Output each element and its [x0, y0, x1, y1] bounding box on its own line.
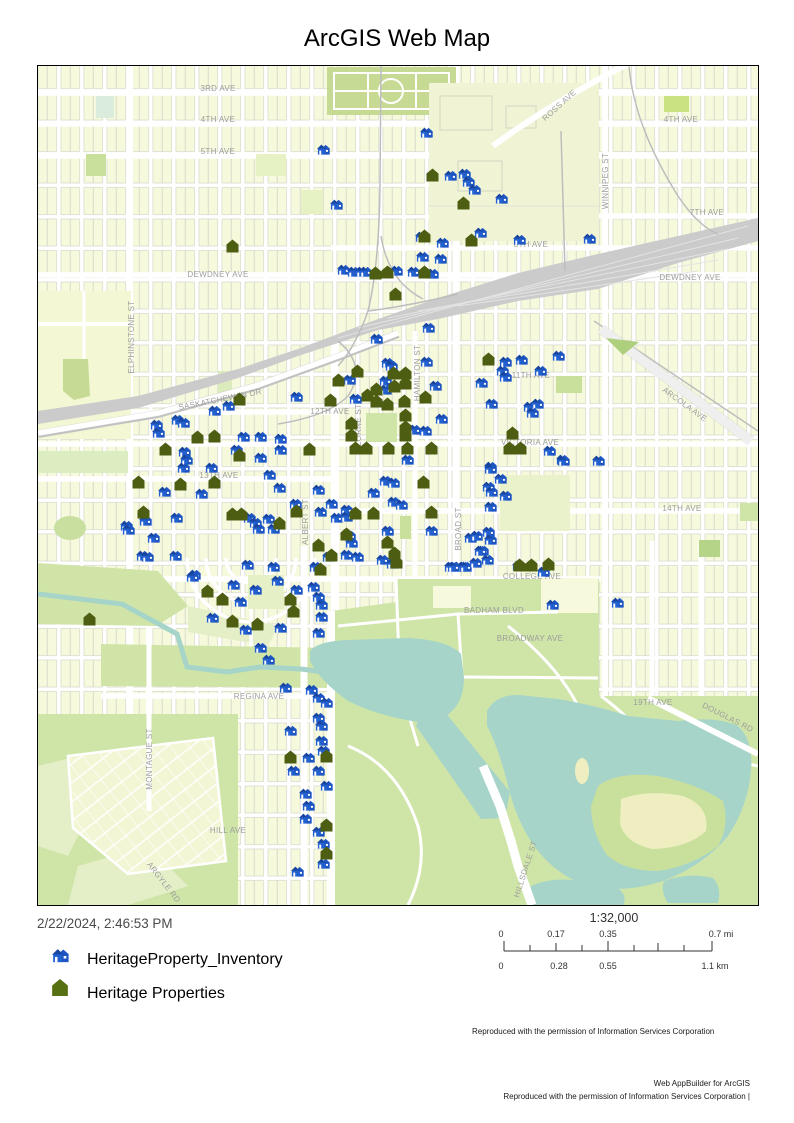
svg-text:ALBERT ST: ALBERT ST	[301, 499, 310, 545]
svg-text:1.1 km: 1.1 km	[701, 961, 728, 971]
svg-text:DEWDNEY AVE: DEWDNEY AVE	[187, 270, 248, 279]
svg-text:7TH AVE: 7TH AVE	[690, 208, 724, 217]
svg-text:0.17: 0.17	[547, 929, 565, 939]
svg-text:WINNIPEG ST: WINNIPEG ST	[601, 153, 610, 209]
svg-text:12TH AVE: 12TH AVE	[310, 407, 349, 416]
svg-text:DEWDNEY AVE: DEWDNEY AVE	[659, 273, 720, 282]
svg-text:0.7 mi: 0.7 mi	[709, 929, 734, 939]
svg-text:13TH AVE: 13TH AVE	[199, 471, 238, 480]
svg-text:0.55: 0.55	[599, 961, 617, 971]
svg-text:5TH AVE: 5TH AVE	[201, 147, 235, 156]
svg-text:ELPHINSTONE ST: ELPHINSTONE ST	[127, 301, 136, 374]
svg-text:BADHAM BLVD: BADHAM BLVD	[464, 606, 524, 615]
svg-text:BROADWAY AVE: BROADWAY AVE	[497, 634, 563, 643]
svg-text:14TH AVE: 14TH AVE	[662, 504, 701, 513]
svg-text:REGINA AVE: REGINA AVE	[234, 692, 284, 701]
svg-text:BROAD ST: BROAD ST	[454, 507, 463, 550]
svg-text:4TH AVE: 4TH AVE	[664, 115, 698, 124]
svg-text:0.28: 0.28	[550, 961, 568, 971]
svg-text:0: 0	[498, 961, 503, 971]
svg-text:0.35: 0.35	[599, 929, 617, 939]
svg-text:HILL AVE: HILL AVE	[210, 826, 246, 835]
svg-text:4TH AVE: 4TH AVE	[201, 115, 235, 124]
svg-text:0: 0	[498, 929, 503, 939]
svg-text:MONTAGUE ST: MONTAGUE ST	[145, 728, 154, 789]
svg-text:19TH AVE: 19TH AVE	[633, 698, 672, 707]
svg-text:3RD AVE: 3RD AVE	[200, 84, 235, 93]
svg-text:COLLEGE AVE: COLLEGE AVE	[503, 572, 561, 581]
svg-text:HAMILTON ST: HAMILTON ST	[413, 345, 422, 401]
